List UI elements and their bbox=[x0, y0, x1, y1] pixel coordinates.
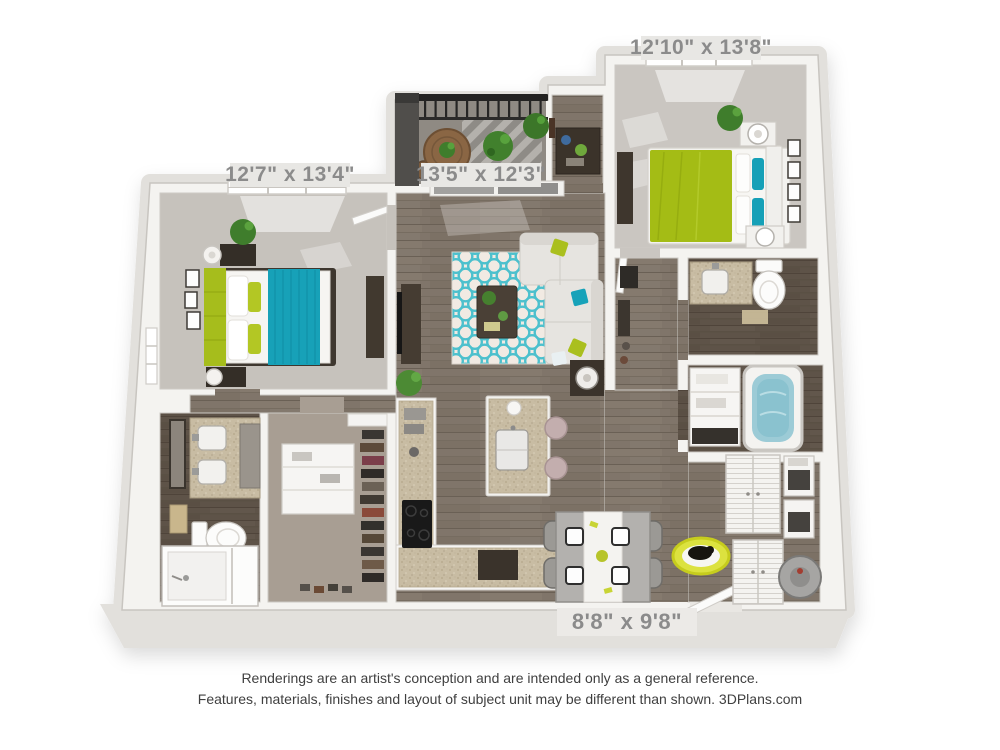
teal-throw bbox=[268, 269, 320, 365]
dimension-label-living-room: 13'5" x 12'3" bbox=[416, 163, 546, 187]
faucet bbox=[712, 263, 719, 269]
coffee-maker bbox=[404, 408, 426, 420]
louvered-closet-door bbox=[726, 455, 780, 533]
dimension-label-bedroom-left: 12'7" x 13'4" bbox=[225, 163, 355, 187]
leaf bbox=[487, 148, 495, 156]
bedroom-left-dimensions: 12'7" x 13'4" bbox=[225, 163, 355, 186]
neighbor-wall-top bbox=[395, 93, 419, 103]
leaf bbox=[733, 108, 742, 117]
doormat bbox=[478, 550, 518, 580]
console-plant bbox=[575, 144, 587, 156]
accent-pillow bbox=[248, 324, 261, 354]
place-setting bbox=[566, 567, 583, 584]
pillow bbox=[228, 276, 248, 316]
bedroom-right-door-opening bbox=[620, 248, 660, 258]
bath-mat bbox=[742, 310, 768, 324]
pet-bed bbox=[673, 538, 729, 574]
dining-dimensions: 8'8" x 9'8" bbox=[572, 609, 682, 634]
dining-closet-opening bbox=[678, 452, 688, 602]
hall-left-floor bbox=[190, 395, 396, 413]
lime-duvet bbox=[650, 150, 732, 242]
mirror bbox=[170, 420, 185, 488]
lime-headboard bbox=[204, 268, 226, 366]
toilet bbox=[753, 260, 785, 309]
louvered-closet-door bbox=[733, 540, 783, 604]
dining-table bbox=[556, 512, 650, 602]
bedroom-right-dimensions: 12'10" x 13'8" bbox=[630, 36, 772, 59]
shower bbox=[162, 546, 258, 606]
bar-stool bbox=[545, 457, 567, 479]
window-side bbox=[146, 328, 157, 384]
drain bbox=[183, 575, 189, 581]
lamp-top bbox=[754, 130, 762, 138]
television bbox=[397, 292, 402, 354]
dimension-label-dining: 8'8" x 9'8" bbox=[557, 608, 697, 636]
closet-door-opening bbox=[300, 397, 344, 413]
teal-pillow bbox=[752, 198, 764, 230]
blue-vase bbox=[561, 135, 571, 145]
dimension-label-bedroom-right: 12'10" x 13'8" bbox=[630, 36, 772, 60]
centerpiece bbox=[596, 550, 608, 562]
water-heater bbox=[779, 556, 821, 598]
pillow bbox=[228, 320, 248, 360]
bath-right-door-opening bbox=[678, 300, 688, 360]
plant bbox=[482, 291, 496, 305]
disclaimer-line-1: Renderings are an artist's conception an… bbox=[0, 668, 1000, 689]
book bbox=[484, 322, 500, 331]
disclaimer-line-2: Features, materials, finishes and layout… bbox=[0, 689, 1000, 710]
faucet bbox=[192, 468, 199, 475]
dresser bbox=[366, 276, 384, 358]
bar-stool bbox=[545, 417, 567, 439]
kettle bbox=[409, 447, 419, 457]
nightstand bbox=[220, 244, 256, 266]
bathtub bbox=[744, 366, 802, 450]
sink bbox=[198, 460, 226, 484]
light-patch bbox=[440, 200, 530, 236]
leaf bbox=[448, 143, 455, 150]
paper-towel-holder bbox=[507, 401, 521, 415]
picture-frames bbox=[185, 270, 200, 329]
table-lamp bbox=[756, 228, 774, 246]
dresser bbox=[617, 152, 633, 224]
place-setting bbox=[612, 528, 629, 545]
place-setting bbox=[612, 567, 629, 584]
accent-pillow bbox=[248, 282, 261, 312]
valve bbox=[797, 568, 803, 574]
living-room-dimensions: 13'5" x 12'3" bbox=[416, 163, 546, 186]
shoes bbox=[620, 356, 628, 364]
tv-console bbox=[401, 284, 421, 364]
towels bbox=[696, 374, 728, 384]
wardrobe-island bbox=[282, 444, 354, 514]
linen-shelves bbox=[690, 368, 740, 446]
coffee-table bbox=[477, 286, 517, 338]
sink bbox=[702, 270, 728, 294]
pillow bbox=[736, 154, 750, 192]
place-setting bbox=[566, 528, 583, 545]
closet-shelf bbox=[348, 414, 387, 426]
shoe-bench bbox=[618, 300, 630, 336]
lamp-top bbox=[583, 374, 591, 382]
cooktop bbox=[402, 500, 432, 548]
bed-left bbox=[204, 268, 336, 366]
utility-closets bbox=[726, 455, 821, 604]
faucet bbox=[511, 426, 516, 431]
towels bbox=[696, 398, 726, 408]
wet-room bbox=[690, 366, 802, 450]
bedroom-door-opening bbox=[387, 205, 396, 250]
leaf bbox=[500, 134, 510, 144]
bath-left-door-opening bbox=[215, 389, 260, 397]
balcony-railing-slats bbox=[399, 100, 546, 118]
shelf-base bbox=[692, 428, 738, 444]
disclaimer: Renderings are an artist's conception an… bbox=[0, 668, 1000, 710]
table-lamp bbox=[206, 369, 222, 385]
teal-pillow bbox=[752, 158, 764, 190]
console-books bbox=[566, 158, 584, 166]
floor-plan-rendering: 12'10" x 13'8" 12'7" x 13'4" 13'5" x 12'… bbox=[0, 0, 1000, 750]
vanity-cabinet bbox=[240, 424, 260, 488]
kitchen-island bbox=[486, 396, 550, 496]
toaster bbox=[404, 424, 424, 434]
balcony-corner-plant bbox=[523, 113, 549, 139]
window-light bbox=[240, 196, 345, 232]
bag bbox=[620, 266, 638, 288]
window-light bbox=[655, 70, 745, 102]
sink bbox=[198, 426, 226, 450]
lamp-top bbox=[209, 252, 216, 259]
balcony-railing-top bbox=[397, 94, 548, 101]
leaf bbox=[537, 116, 545, 124]
throw-pillow bbox=[551, 351, 567, 366]
leaf bbox=[245, 222, 254, 231]
wet-room-door-opening bbox=[678, 390, 688, 440]
wall-art bbox=[549, 118, 555, 138]
succulent bbox=[498, 311, 508, 321]
floor-plan-page: 12'10" x 13'8" 12'7" x 13'4" 13'5" x 12'… bbox=[0, 0, 1000, 750]
shelf-items bbox=[788, 458, 808, 466]
leaf bbox=[411, 372, 421, 382]
hamper bbox=[170, 505, 187, 533]
shoes bbox=[622, 342, 630, 350]
faucet bbox=[192, 434, 199, 441]
